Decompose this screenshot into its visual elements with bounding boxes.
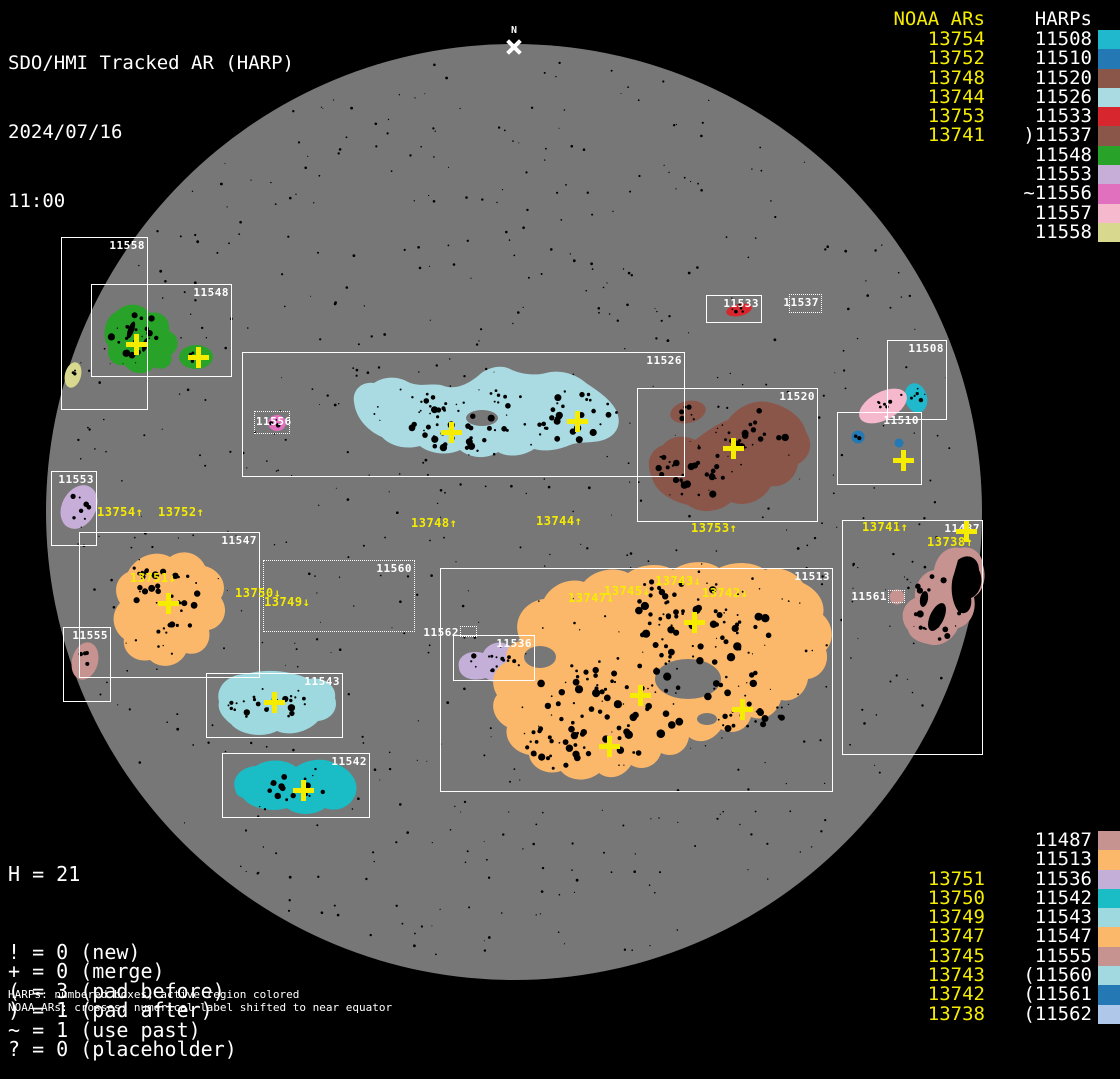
harp-box-label: 11537 <box>783 296 819 309</box>
legend-noaa-ar: 13741 <box>890 126 985 145</box>
north-label: N <box>498 25 530 36</box>
noaa-ar-cross <box>723 438 744 459</box>
harp-box-11533: 11533 <box>706 295 762 323</box>
legend-harp: 11547 <box>985 927 1092 946</box>
harp-box-label: 11508 <box>908 342 944 355</box>
noaa-ar-cross <box>126 334 147 355</box>
harp-box-11487: 11487 <box>842 520 983 755</box>
noaa-ar-cross <box>293 780 314 801</box>
legend-swatch <box>1098 927 1120 946</box>
north-x-icon <box>505 38 523 56</box>
legend-noaa-ar: 13747 <box>890 927 985 946</box>
legend-swatch <box>1098 126 1120 145</box>
legend-swatch <box>1098 985 1120 1004</box>
legend-harp: 11520 <box>985 69 1092 88</box>
noaa-ar-label: 13738↑ <box>927 535 973 549</box>
noaa-ar-label: 13751↓ <box>130 571 176 585</box>
north-marker: N <box>498 25 530 36</box>
legend-harp: 11510 <box>985 49 1092 68</box>
noaa-ar-cross <box>158 593 179 614</box>
legend-swatch <box>1098 889 1120 908</box>
legend-swatch <box>1098 49 1120 68</box>
noaa-ar-label: 13749↓ <box>264 595 310 609</box>
legend-harp: 11513 <box>985 850 1092 869</box>
legend-swatch <box>1098 831 1120 850</box>
harp-box-label: 11558 <box>109 239 145 252</box>
noaa-ar-cross <box>264 692 285 713</box>
harp-box-11561: 11561 <box>888 590 905 603</box>
legend-row: 13738(11562 <box>890 1005 1120 1024</box>
title-block: SDO/HMI Tracked AR (HARP) 2024/07/16 11:… <box>8 6 294 236</box>
legend-swatch <box>1098 966 1120 985</box>
legend-noaa-ar: 13752 <box>890 49 985 68</box>
noaa-ar-cross <box>732 699 753 720</box>
legend-top-rows: 1375411508137521151013748115201374411526… <box>890 30 1120 242</box>
legend-swatch <box>1098 870 1120 889</box>
legend-row: ~11556 <box>890 184 1120 203</box>
harp-box-label: 11510 <box>883 414 919 427</box>
noaa-ar-label: 13752↑ <box>158 505 204 519</box>
harp-box-label: 11548 <box>193 286 229 299</box>
legend-row: 1374811520 <box>890 69 1120 88</box>
footnote: NOAA ARs: crosses; numerical label shift… <box>8 1002 392 1015</box>
legend-row: 11558 <box>890 223 1120 242</box>
harp-box-label: 11520 <box>779 390 815 403</box>
harp-box-11537: 11537 <box>789 294 822 313</box>
legend-noaa-ar: 13738 <box>890 1005 985 1024</box>
legend-swatch <box>1098 850 1120 869</box>
legend-row: 1375111536 <box>890 870 1120 889</box>
legend-swatch <box>1098 184 1120 203</box>
legend-swatch <box>1098 69 1120 88</box>
noaa-ar-cross <box>567 411 588 432</box>
harps-header: HARPs <box>985 10 1092 30</box>
legend-top: NOAA ARs HARPs 1375411508137521151013748… <box>890 10 1120 242</box>
date-label: 2024/07/16 <box>8 121 294 144</box>
legend-swatch <box>1098 1005 1120 1024</box>
legend-swatch <box>1098 947 1120 966</box>
legend-noaa-ar: 13748 <box>890 69 985 88</box>
legend-row: 11513 <box>890 850 1120 869</box>
stats-block: H = 21 ! = 0 (new)+ = 0 (merge)( = 3 (pa… <box>8 826 237 1079</box>
legend-swatch <box>1098 30 1120 49</box>
legend-noaa-ar: 13742 <box>890 985 985 1004</box>
noaa-ar-label: 13744↑ <box>536 514 582 528</box>
harp-box-label: 11533 <box>723 297 759 310</box>
harp-box-label: 11542 <box>331 755 367 768</box>
noaa-ar-label: 13741↑ <box>862 520 908 534</box>
noaa-ar-label: 13742↓ <box>702 586 748 600</box>
harp-box-11510: 11510 <box>837 412 922 485</box>
legend-harp: (11561 <box>985 985 1092 1004</box>
legend-swatch <box>1098 107 1120 126</box>
legend-harp: )11537 <box>985 126 1092 145</box>
harp-box-label: 11560 <box>376 562 412 575</box>
harp-box-label: 11547 <box>221 534 257 547</box>
legend-swatch <box>1098 88 1120 107</box>
stats-line: ? = 0 (placeholder) <box>8 1040 237 1059</box>
noaa-ar-cross <box>893 450 914 471</box>
harp-box-11513: 11513 <box>440 568 833 792</box>
noaa-ars-header: NOAA ARs <box>890 10 985 30</box>
legend-harp: 11558 <box>985 223 1092 242</box>
legend-swatch <box>1098 146 1120 165</box>
noaa-ar-label: 13743↓ <box>655 574 701 588</box>
legend-harp: 11536 <box>985 870 1092 889</box>
noaa-ar-label: 13753↑ <box>691 521 737 535</box>
noaa-ar-label: 13748↑ <box>411 516 457 530</box>
time-label: 11:00 <box>8 190 294 213</box>
footnotes: HARPs: numbered boxes; active region col… <box>8 989 392 1014</box>
legend-swatch <box>1098 204 1120 223</box>
harp-box-label: 11555 <box>72 629 108 642</box>
legend-swatch <box>1098 165 1120 184</box>
legend-swatch <box>1098 908 1120 927</box>
legend-harp: (11562 <box>985 1005 1092 1024</box>
noaa-ar-cross <box>441 422 462 443</box>
legend-bottom-rows: 1148711513137511153613750115421374911543… <box>890 831 1120 1024</box>
legend-row: 1374711547 <box>890 927 1120 946</box>
harp-box-11555: 11555 <box>63 627 111 702</box>
noaa-ar-cross <box>684 612 705 633</box>
harp-box-label: 11561 <box>851 590 887 603</box>
footnote: HARPs: numbered boxes; active region col… <box>8 989 392 1002</box>
legend-noaa-ar: 13751 <box>890 870 985 889</box>
legend-row: 1375211510 <box>890 49 1120 68</box>
harp-box-label: 11513 <box>794 570 830 583</box>
harp-box-11508: 11508 <box>887 340 947 420</box>
harp-box-11548: 11548 <box>91 284 232 377</box>
legend-swatch <box>1098 223 1120 242</box>
harp-box-label: 11543 <box>304 675 340 688</box>
harp-box-11526: 11526 <box>242 352 685 477</box>
legend-row: 13742(11561 <box>890 985 1120 1004</box>
harp-box-label: 11526 <box>646 354 682 367</box>
harp-box-label: 11553 <box>58 473 94 486</box>
legend-row: 13741)11537 <box>890 126 1120 145</box>
legend-harp: ~11556 <box>985 184 1092 203</box>
noaa-ar-label: 13745↓ <box>604 584 650 598</box>
harp-box-11556: 11556 <box>254 411 290 434</box>
harp-box-label: 11556 <box>256 415 292 428</box>
noaa-ar-cross <box>188 347 209 368</box>
noaa-ar-cross <box>599 736 620 757</box>
noaa-ar-label: 13754↑ <box>97 505 143 519</box>
page-title: SDO/HMI Tracked AR (HARP) <box>8 52 294 75</box>
harp-count: H = 21 <box>8 865 237 884</box>
legend-top-header: NOAA ARs HARPs <box>890 10 1120 30</box>
legend-bottom: 1148711513137511153613750115421374911543… <box>890 831 1120 1024</box>
noaa-ar-cross <box>630 685 651 706</box>
